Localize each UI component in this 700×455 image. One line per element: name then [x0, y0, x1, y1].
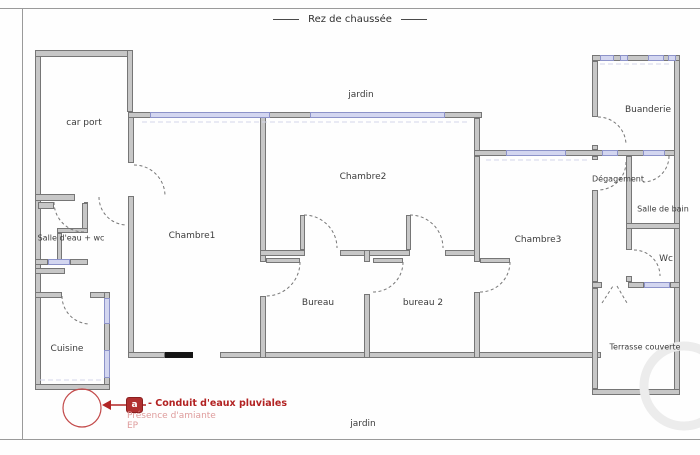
- wall-segment: [474, 156, 480, 262]
- wall-segment: [70, 259, 88, 265]
- boundary-line-bottom: [0, 439, 700, 440]
- entrance-door: [165, 352, 193, 358]
- wall-segment: [35, 268, 65, 274]
- annotation-line3: EP: [127, 421, 138, 431]
- wall-segment: [626, 156, 632, 250]
- wall-segment: [38, 202, 54, 209]
- window-segment: [600, 55, 614, 61]
- wall-segment: [266, 258, 300, 263]
- room-label-buanderie: Buanderie: [625, 105, 671, 115]
- wall-segment: [628, 282, 644, 288]
- title-dash-right: [401, 19, 427, 20]
- window-segment: [150, 112, 270, 118]
- garden-label-bottom: jardin: [350, 419, 375, 429]
- wall-segment: [592, 288, 598, 389]
- window-segment: [648, 55, 664, 61]
- room-label-chambre1: Chambre1: [169, 231, 216, 241]
- wall-segment: [220, 352, 601, 358]
- window-segment: [310, 112, 445, 118]
- wall-segment: [340, 250, 410, 256]
- wall-segment: [670, 282, 680, 288]
- plan-title: Rez de chaussée: [0, 14, 700, 25]
- room-label-degagement: Dégagement: [592, 175, 644, 184]
- wall-segment: [128, 352, 165, 358]
- room-label-terrasse: Terrasse couverte: [610, 343, 681, 352]
- window-segment: [643, 150, 665, 156]
- floor-plan-canvas: Rez de chaussée: [0, 0, 700, 455]
- wall-segment: [592, 156, 598, 160]
- title-dash-left: [273, 19, 299, 20]
- room-label-wc: Wc: [659, 254, 673, 264]
- window-segment: [602, 150, 618, 156]
- garden-label-top: jardin: [348, 90, 373, 100]
- room-label-chambre2: Chambre2: [340, 172, 387, 182]
- boundary-line-left: [22, 8, 23, 440]
- wall-segment: [474, 292, 480, 358]
- wall-segment: [592, 282, 602, 288]
- wall-segment: [592, 190, 598, 282]
- room-label-bureau: Bureau: [302, 298, 334, 308]
- annotation-title: - Conduit d'eaux pluviales: [148, 398, 287, 409]
- window-segment: [644, 282, 670, 288]
- window-segment: [104, 298, 110, 324]
- wall-segment: [592, 145, 598, 150]
- wall-segment: [127, 50, 133, 112]
- annotation-line2: Présence d'amiante: [127, 411, 216, 421]
- room-label-bureau2: bureau 2: [403, 298, 443, 308]
- wall-segment: [626, 223, 680, 229]
- watermark-circle: [644, 346, 700, 426]
- wall-segment: [35, 292, 62, 298]
- window-segment: [506, 150, 566, 156]
- window-segment: [620, 55, 628, 61]
- wall-segment: [373, 258, 403, 263]
- wall-segment: [592, 389, 680, 395]
- wall-segment: [35, 384, 110, 390]
- room-label-salle-eau-wc: Salle d'eau + wc: [38, 234, 105, 243]
- wall-segment: [300, 215, 305, 250]
- room-label-cuisine: Cuisine: [51, 344, 84, 354]
- window-segment: [48, 259, 70, 265]
- wall-segment: [260, 112, 266, 262]
- wall-segment: [592, 61, 598, 117]
- wall-segment: [406, 215, 411, 250]
- window-segment: [104, 350, 110, 378]
- wall-segment: [364, 250, 370, 262]
- wall-segment: [128, 112, 134, 163]
- wall-segment: [128, 196, 134, 358]
- room-label-salle-de-bain: Salle de bain: [637, 205, 689, 214]
- wall-segment: [480, 258, 510, 263]
- room-label-chambre3: Chambre3: [515, 235, 562, 245]
- wall-segment: [35, 194, 75, 201]
- plan-title-text: Rez de chaussée: [308, 14, 392, 25]
- wall-segment: [35, 50, 41, 390]
- wall-segment: [260, 296, 266, 358]
- boundary-line-top: [0, 8, 700, 9]
- room-label-car-port: car port: [66, 118, 101, 128]
- wall-segment: [35, 50, 133, 57]
- wall-segment: [35, 259, 48, 265]
- wall-segment: [260, 250, 305, 256]
- wall-segment: [364, 294, 370, 358]
- window-segment: [668, 55, 676, 61]
- door-swing-arcs: [54, 117, 669, 324]
